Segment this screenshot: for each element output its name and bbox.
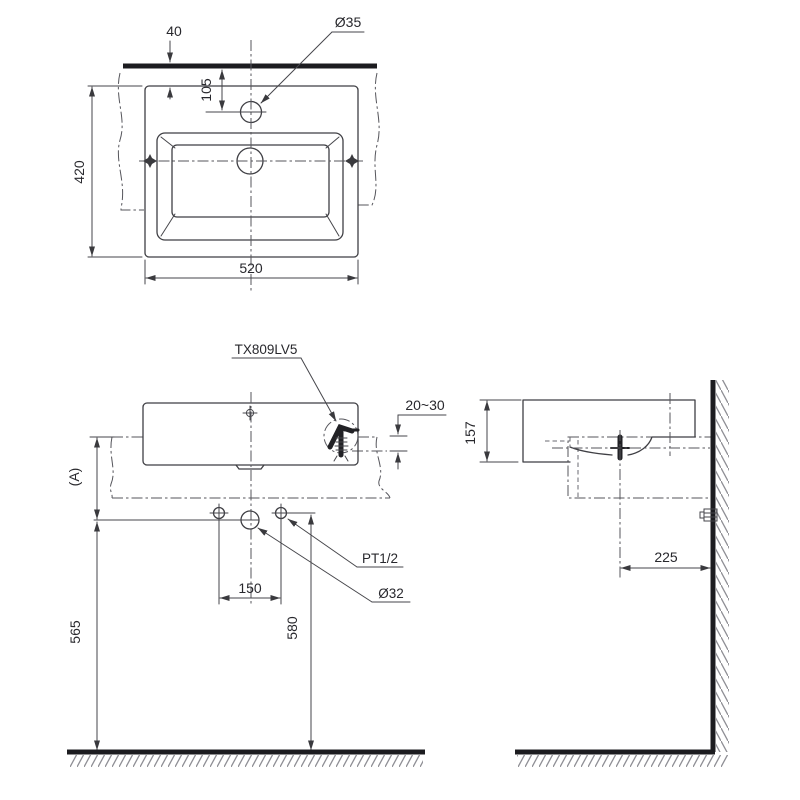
dia-32-label: Ø32 xyxy=(378,586,404,601)
supply-thread-callout: PT1/2 xyxy=(288,519,403,567)
dim-225-label: 225 xyxy=(654,549,678,565)
side-view: 157 225 xyxy=(462,380,729,767)
faucet-model-callout: TX809LV5 xyxy=(232,342,336,421)
counter-break-right-front xyxy=(376,437,390,498)
dim-565-label: 565 xyxy=(67,620,83,644)
basin-outline-side xyxy=(523,400,695,462)
dim-wall-to-basin: 40 xyxy=(166,23,182,99)
dim-drain-to-wall: 225 xyxy=(621,549,710,568)
dim-wall-to-faucet-hole: 105 xyxy=(198,70,241,112)
dim-580-label: 580 xyxy=(284,616,300,640)
dim-height-reference: (A) xyxy=(66,437,114,519)
installation-drawing: 40 105 420 520 Ø35 xyxy=(0,0,800,800)
top-view: 40 105 420 520 Ø35 xyxy=(71,14,379,292)
dim-150-label: 150 xyxy=(238,580,262,596)
dim-520-label: 520 xyxy=(239,260,263,276)
dim-basin-depth: 420 xyxy=(71,86,142,257)
bowl-profile-side xyxy=(570,437,695,455)
counter-break-right xyxy=(358,73,379,205)
counter-phantom-side xyxy=(568,437,712,498)
floor-hatch-side xyxy=(517,755,728,767)
dim-basin-height: 157 xyxy=(462,400,521,462)
dim-supply-spacing: 150 xyxy=(219,521,281,604)
dim-157-label: 157 xyxy=(462,421,478,445)
supply-point-left xyxy=(210,504,228,522)
bowl-rim xyxy=(157,133,343,240)
wall-hatch xyxy=(716,380,729,752)
dim-drain-height: 565 xyxy=(67,522,97,750)
faucet-model-label: TX809LV5 xyxy=(235,342,298,357)
dim-105-label: 105 xyxy=(198,78,214,102)
bowl-corner-bevels xyxy=(161,137,339,236)
counter-break-left-front xyxy=(110,437,113,498)
counter-break-left xyxy=(118,73,144,210)
bowl-rim-hidden xyxy=(545,437,570,447)
pt12-label: PT1/2 xyxy=(362,551,398,566)
floor-hatch-front xyxy=(70,755,423,767)
dim-40-label: 40 xyxy=(166,23,182,39)
dim-420-label: 420 xyxy=(71,160,87,184)
top-center-target xyxy=(243,406,257,420)
dim-supply-height: 580 xyxy=(284,515,311,750)
front-view: TX809LV5 20~30 (A) xyxy=(66,342,446,767)
dia-35-label: Ø35 xyxy=(335,14,362,30)
faucet-assembly xyxy=(324,419,358,461)
faucet-hole-callout: Ø35 xyxy=(261,14,364,103)
dim-20-30-label: 20~30 xyxy=(405,397,445,413)
centerline-marker-right xyxy=(345,154,359,168)
dim-counter-thickness: 20~30 xyxy=(390,397,446,469)
dim-a-label: (A) xyxy=(66,468,82,487)
supply-point-right xyxy=(272,504,290,522)
